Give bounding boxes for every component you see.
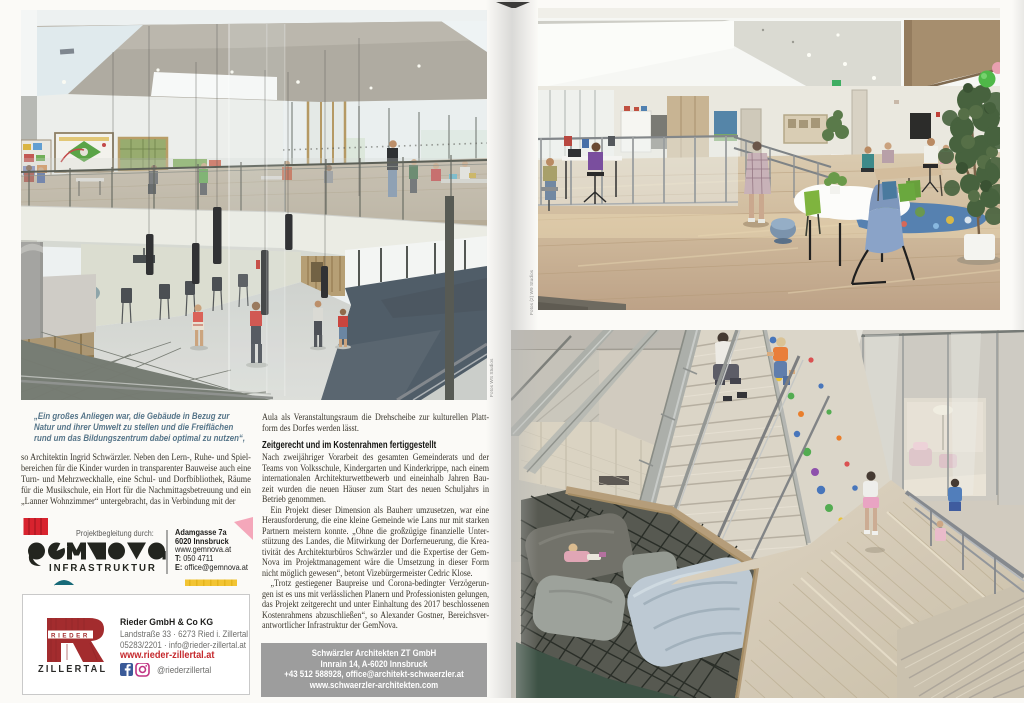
svg-text:RIEDER: RIEDER <box>51 632 90 639</box>
